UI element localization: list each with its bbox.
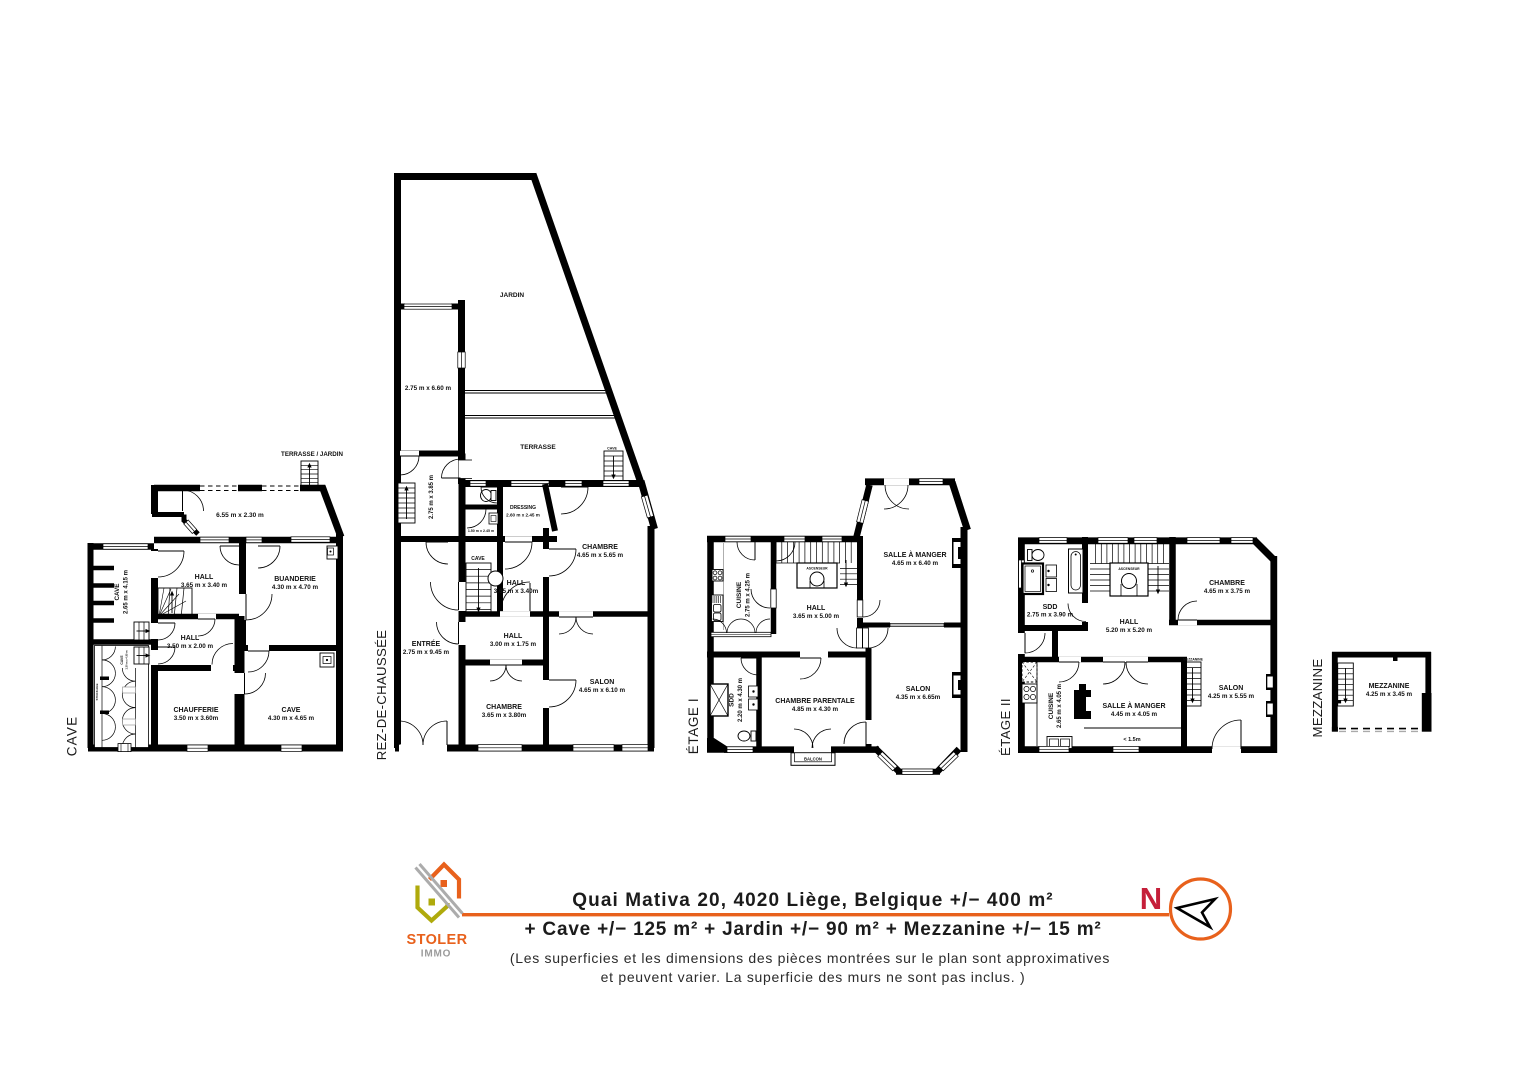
svg-text:CAVE: CAVE — [120, 655, 124, 665]
svg-text:3.65 m x 3.80m: 3.65 m x 3.80m — [482, 712, 527, 719]
svg-text:SALLE À MANGER: SALLE À MANGER — [1103, 701, 1166, 710]
svg-text:SALON: SALON — [1219, 685, 1244, 692]
svg-text:HALL: HALL — [504, 633, 523, 640]
svg-text:1.30 m x 4.55 m: 1.30 m x 4.55 m — [125, 650, 129, 670]
svg-text:DRESSING: DRESSING — [510, 505, 536, 511]
svg-text:IMMO: IMMO — [421, 949, 451, 960]
svg-text:2.60 m x 2.45 m: 2.60 m x 2.45 m — [506, 513, 540, 518]
svg-text:4.65 m x 6.40 m: 4.65 m x 6.40 m — [892, 560, 939, 567]
svg-text:2.65 m x 4.15 m: 2.65 m x 4.15 m — [124, 570, 130, 614]
svg-text:SALLE À MANGER: SALLE À MANGER — [884, 550, 947, 559]
svg-text:SALON: SALON — [590, 679, 615, 686]
svg-text:4.65 m x 5.65 m: 4.65 m x 5.65 m — [577, 552, 624, 559]
svg-text:4.65 m x 3.75 m: 4.65 m x 3.75 m — [1204, 588, 1251, 595]
svg-text:REZ-DE-CHAUSSÉE: REZ-DE-CHAUSSÉE — [374, 630, 389, 761]
svg-text:CUISINE: CUISINE — [1048, 692, 1055, 719]
svg-text:CHAUFFERIE: CHAUFFERIE — [173, 707, 218, 714]
svg-text:3.65 m x 3.40m: 3.65 m x 3.40m — [494, 588, 539, 595]
svg-text:2.75 m x 9.45 m: 2.75 m x 9.45 m — [403, 649, 450, 656]
svg-text:CAVE: CAVE — [471, 556, 485, 562]
svg-text:2.20 m x 4.30 m: 2.20 m x 4.30 m — [738, 678, 744, 722]
svg-text:6.55 m x 2.30 m: 6.55 m x 2.30 m — [216, 512, 264, 519]
svg-text:SALON: SALON — [906, 686, 931, 693]
svg-text:(Les superficies et les dimens: (Les superficies et les dimensions des p… — [510, 950, 1110, 966]
svg-text:ÉTAGE I: ÉTAGE I — [686, 698, 701, 754]
svg-text:2.75 m x 3.85 m: 2.75 m x 3.85 m — [429, 475, 435, 519]
svg-text:STOLER: STOLER — [407, 932, 468, 948]
svg-text:4.25 m x 3.45 m: 4.25 m x 3.45 m — [1366, 691, 1413, 698]
svg-text:4.30 m x 4.70 m: 4.30 m x 4.70 m — [272, 584, 319, 591]
svg-text:BUANDERIE: BUANDERIE — [274, 576, 316, 583]
svg-text:+ Cave +/− 125 m² + Jardin +/−: + Cave +/− 125 m² + Jardin +/− 90 m² + M… — [524, 919, 1101, 940]
svg-text:N: N — [1140, 881, 1162, 916]
svg-text:CAVE: CAVE — [607, 447, 617, 451]
svg-text:CHAMBRE: CHAMBRE — [1209, 580, 1245, 587]
svg-text:SDD: SDD — [729, 693, 736, 707]
svg-text:ASCENSEUR: ASCENSEUR — [1118, 567, 1140, 571]
svg-text:TERRASSE / JARDIN: TERRASSE / JARDIN — [281, 451, 343, 458]
svg-text:MEZZANINE: MEZZANINE — [1369, 683, 1410, 690]
svg-text:4.35 m x 6.65m: 4.35 m x 6.65m — [896, 694, 941, 701]
svg-text:2.65 m x 4.05 m: 2.65 m x 4.05 m — [1057, 684, 1063, 728]
svg-text:HALL: HALL — [507, 580, 526, 587]
svg-text:CAVE: CAVE — [282, 707, 301, 714]
svg-text:2.75 m x 6.60 m: 2.75 m x 6.60 m — [405, 385, 452, 392]
svg-text:JARDIN: JARDIN — [500, 292, 525, 299]
svg-text:4.25 m x 5.55 m: 4.25 m x 5.55 m — [1208, 693, 1255, 700]
svg-text:TERRASSE: TERRASSE — [520, 444, 556, 451]
svg-text:2.75 m x 4.25 m: 2.75 m x 4.25 m — [746, 573, 752, 617]
svg-text:HALL: HALL — [181, 635, 200, 642]
svg-text:BALCON: BALCON — [804, 757, 822, 762]
svg-text:4.45 m x 4.05 m: 4.45 m x 4.05 m — [1111, 711, 1158, 718]
svg-text:1.50 m x 2.45 m: 1.50 m x 2.45 m — [468, 529, 494, 533]
svg-text:HALL: HALL — [807, 605, 826, 612]
svg-text:Quai Mativa 20, 4020 Liège, Be: Quai Mativa 20, 4020 Liège, Belgique +/−… — [572, 890, 1054, 911]
svg-text:STOCKAGE: STOCKAGE — [95, 684, 99, 701]
svg-text:3.50 m x 3.60m: 3.50 m x 3.60m — [174, 715, 219, 722]
svg-text:4.30 m x 4.65 m: 4.30 m x 4.65 m — [268, 715, 315, 722]
svg-text:4.65 m x 6.10 m: 4.65 m x 6.10 m — [579, 687, 626, 694]
svg-text:2.75 m x 3.90 m: 2.75 m x 3.90 m — [1027, 612, 1074, 619]
svg-text:3.65 m x 5.00 m: 3.65 m x 5.00 m — [793, 613, 840, 620]
svg-text:et peuvent varier. La superfic: et peuvent varier. La superficie des mur… — [601, 969, 1026, 985]
svg-text:MEZZANINE: MEZZANINE — [1183, 657, 1204, 661]
svg-text:CAVE: CAVE — [114, 583, 121, 600]
svg-text:HALL: HALL — [195, 574, 214, 581]
svg-text:5.20 m x 5.20 m: 5.20 m x 5.20 m — [1106, 627, 1153, 634]
svg-text:CUISINE: CUISINE — [736, 581, 743, 608]
svg-text:< 1.5m: < 1.5m — [1123, 737, 1140, 743]
svg-text:CAVE: CAVE — [65, 716, 80, 757]
svg-text:SDD: SDD — [1043, 604, 1058, 611]
svg-text:HALL: HALL — [1120, 619, 1139, 626]
svg-text:CHAMBRE: CHAMBRE — [582, 544, 618, 551]
svg-text:ASCENSEUR: ASCENSEUR — [806, 567, 828, 571]
svg-text:ÉTAGE II: ÉTAGE II — [998, 698, 1013, 756]
svg-text:CHAMBRE: CHAMBRE — [486, 704, 522, 711]
svg-text:CHAMBRE PARENTALE: CHAMBRE PARENTALE — [775, 698, 855, 705]
svg-text:ENTRÉE: ENTRÉE — [412, 639, 441, 648]
svg-text:3.00 m x 1.75 m: 3.00 m x 1.75 m — [490, 641, 537, 648]
svg-text:4.85 m x 4.30 m: 4.85 m x 4.30 m — [792, 706, 839, 713]
svg-text:MEZZANINE: MEZZANINE — [1310, 659, 1325, 738]
